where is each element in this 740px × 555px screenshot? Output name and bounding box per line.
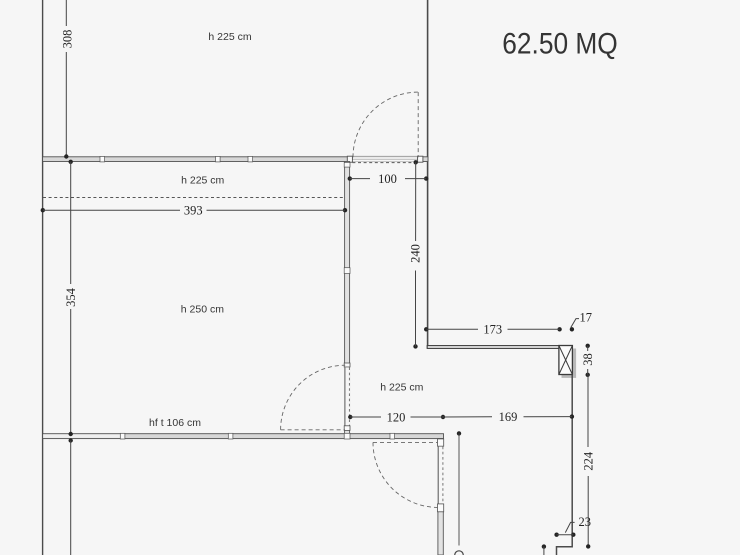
svg-text:38: 38 — [581, 353, 595, 366]
svg-text:354: 354 — [64, 287, 78, 307]
svg-text:240: 240 — [409, 244, 423, 263]
svg-text:308: 308 — [61, 30, 75, 49]
svg-text:h 250 cm: h 250 cm — [181, 304, 224, 316]
svg-text:h 225 cm: h 225 cm — [208, 31, 251, 43]
svg-text:100: 100 — [378, 172, 397, 186]
svg-text:17: 17 — [580, 311, 593, 325]
svg-text:23: 23 — [579, 515, 592, 529]
svg-text:h 225 cm: h 225 cm — [380, 381, 423, 393]
svg-text:h 225 cm: h 225 cm — [181, 174, 224, 186]
svg-text:173: 173 — [483, 323, 502, 337]
svg-text:hf t 106 cm: hf t 106 cm — [149, 417, 201, 429]
svg-text:393: 393 — [184, 204, 203, 218]
svg-text:120: 120 — [387, 410, 406, 424]
svg-text:169: 169 — [499, 410, 518, 424]
svg-text:224: 224 — [582, 451, 596, 471]
svg-text:62.50 MQ: 62.50 MQ — [502, 28, 618, 61]
